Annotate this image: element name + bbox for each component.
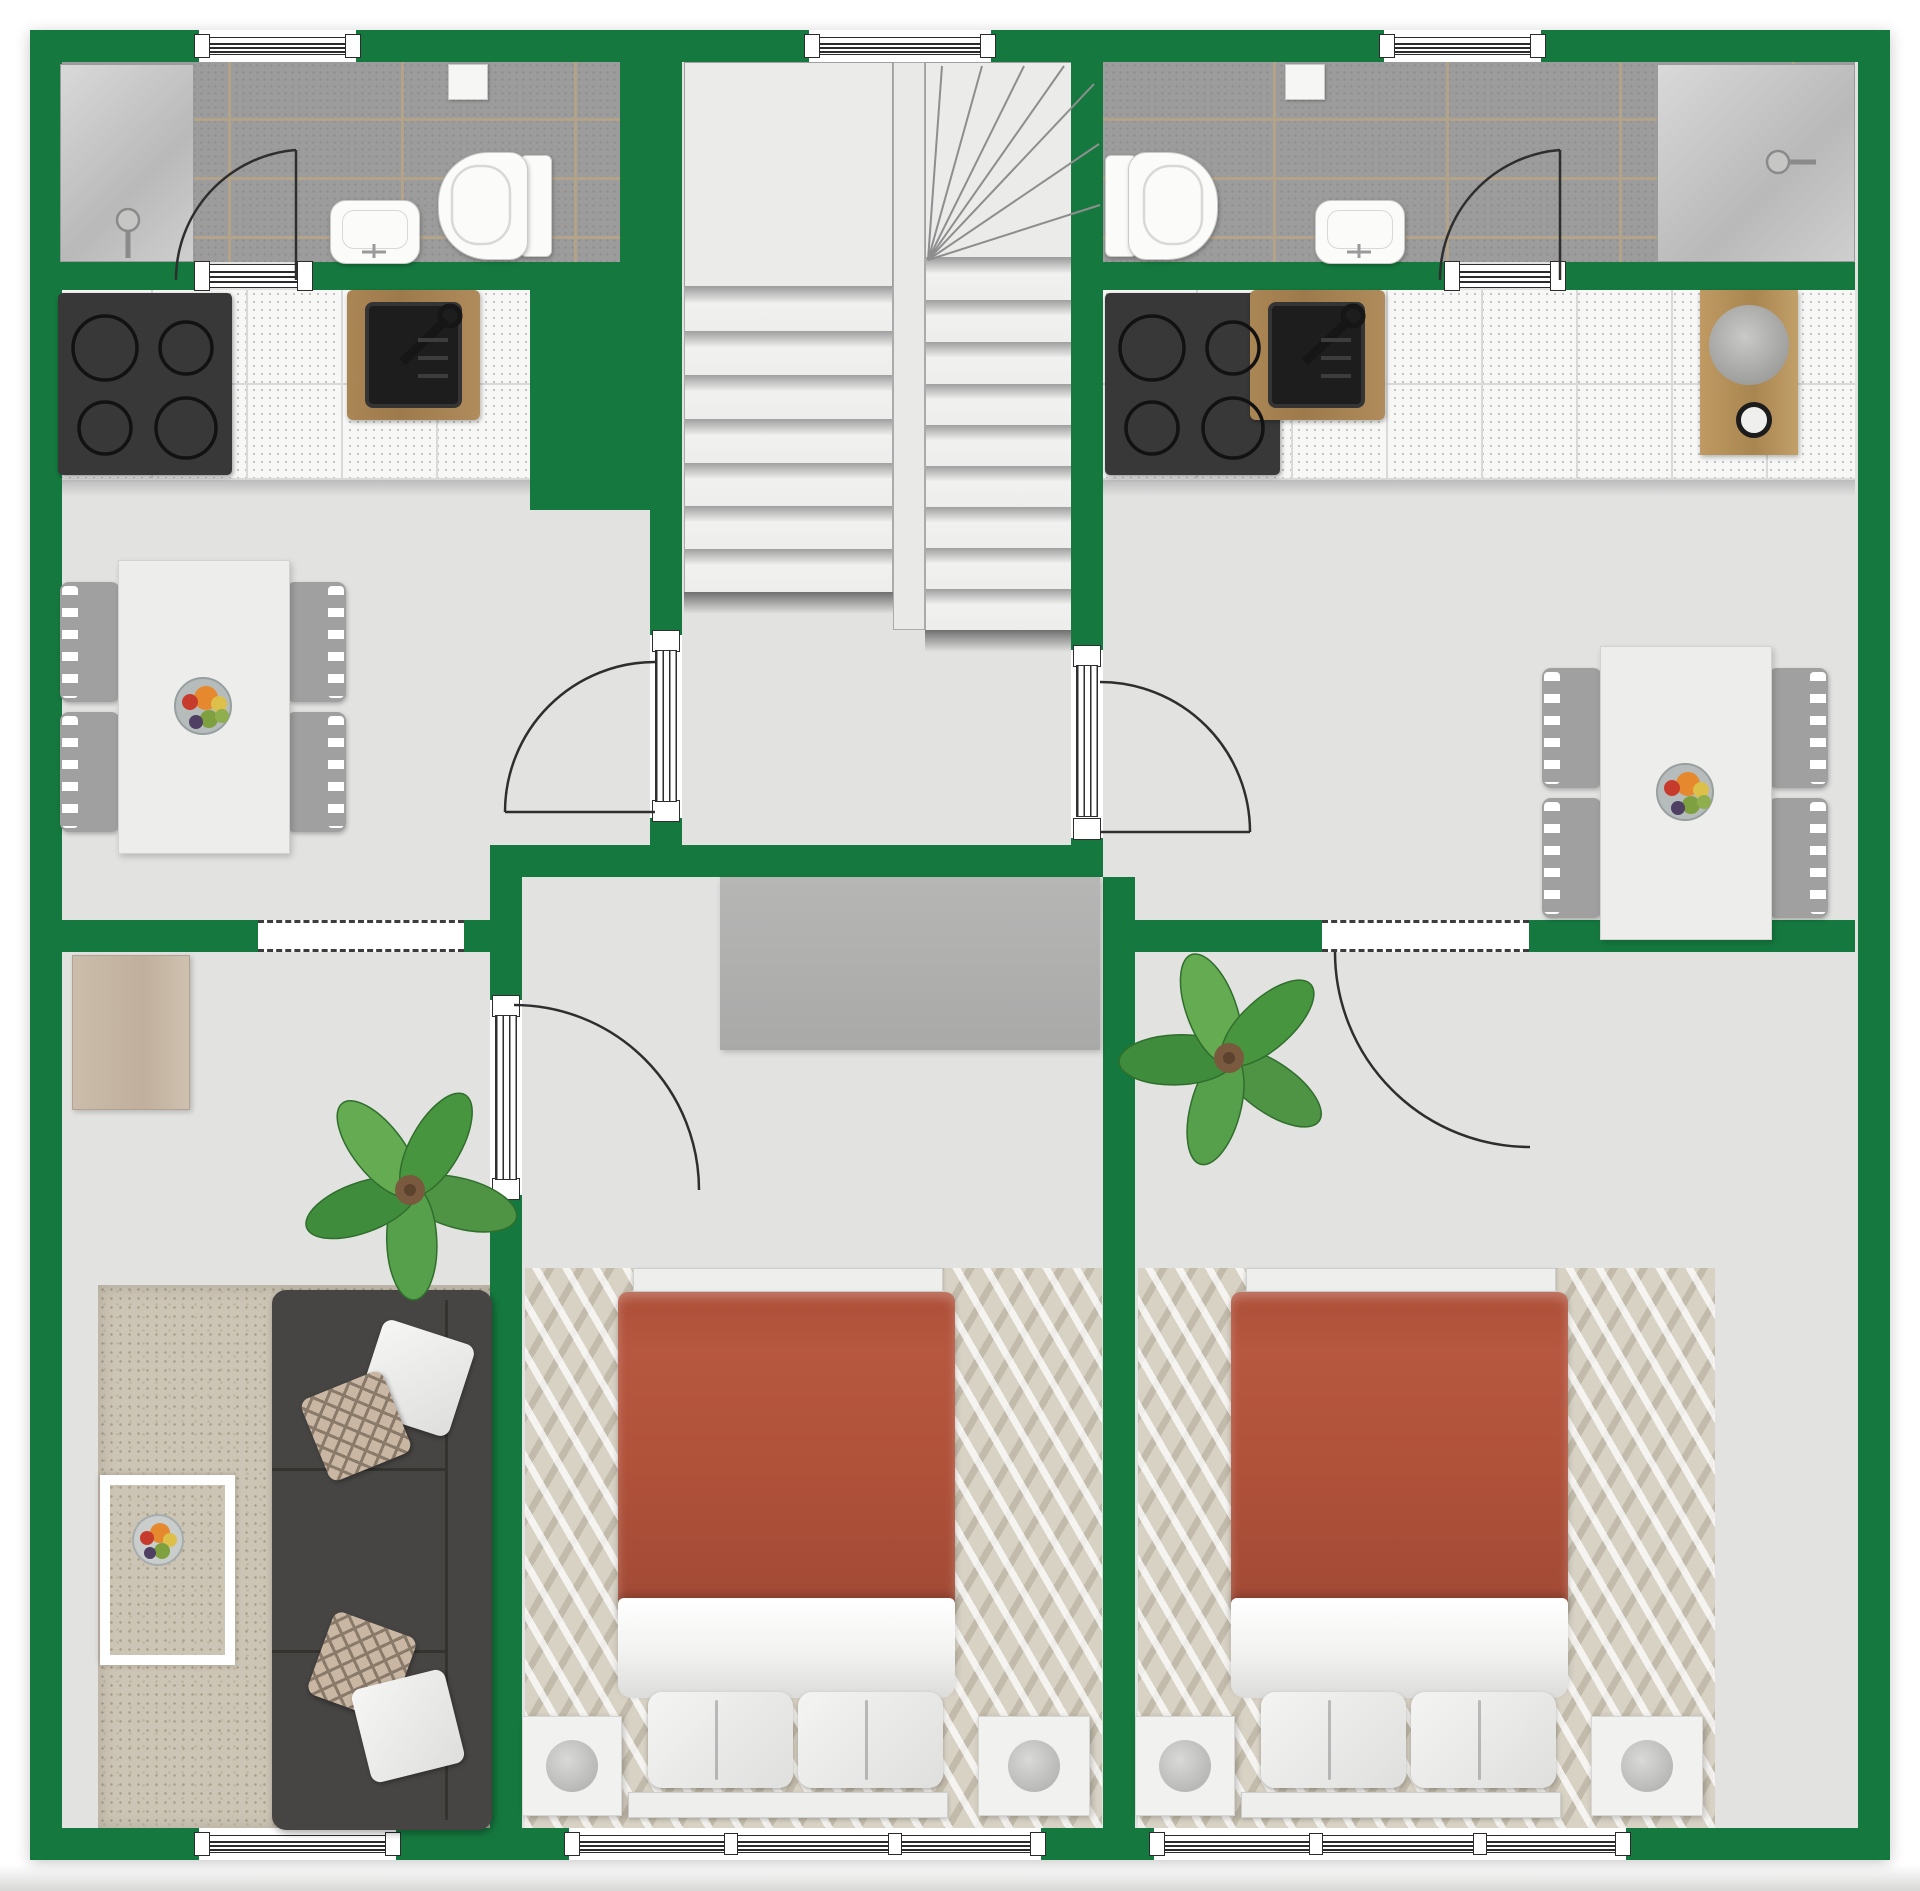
plant-monstera-left[interactable] (298, 1082, 523, 1301)
plan-annotations (0, 0, 1920, 1891)
toilet-seat-lines (452, 166, 1202, 244)
fruit-bowl-coffee-table (133, 1515, 183, 1565)
kitchen-faucet-icons (402, 306, 1363, 376)
fruit-bowl-dining-left (175, 678, 231, 734)
cooktop-burners (73, 316, 1263, 458)
basin-faucet-ticks (362, 244, 1371, 258)
fruit-bowl-dining-right (1657, 764, 1713, 820)
stair-winder-lines (928, 66, 1100, 260)
floor-plan-canvas (0, 0, 1920, 1891)
page-edge-shadow (0, 1865, 1920, 1891)
plant-monstera-right[interactable] (1118, 946, 1333, 1171)
